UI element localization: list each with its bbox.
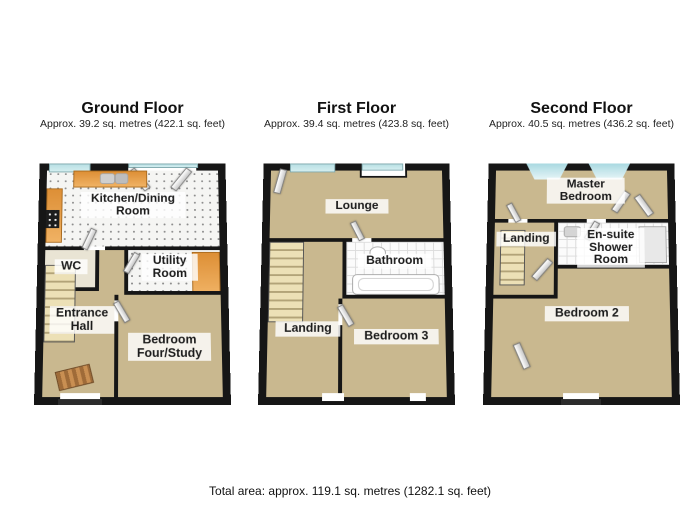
sink-icon xyxy=(100,173,115,184)
ground-floor-panel: Ground Floor Approx. 39.2 sq. metres (42… xyxy=(34,100,231,405)
first-floor-title: First Floor xyxy=(258,100,455,118)
second-floor-area: Approx. 40.5 sq. metres (436.2 sq. feet) xyxy=(483,118,680,131)
second-floor-plan: Master Bedroom Landing En-suite Shower R… xyxy=(483,164,680,405)
front-door-step xyxy=(58,399,102,405)
room-label-lounge: Lounge xyxy=(325,199,388,213)
lounge-window-left xyxy=(290,164,335,173)
room-label-wc: WC xyxy=(54,259,87,273)
ground-floor-interior: Kitchen/Dining Room WC Utility Room Entr… xyxy=(42,171,223,397)
room-label-landing: Landing xyxy=(496,232,556,246)
room-label-bathroom: Bathroom xyxy=(358,254,432,268)
ground-floor-title: Ground Floor xyxy=(34,100,231,118)
room-label-master: Master Bedroom xyxy=(547,178,625,204)
sink-drainer-icon xyxy=(115,173,128,184)
landing-bottom-wall xyxy=(493,295,557,299)
second-floor-interior: Master Bedroom Landing En-suite Shower R… xyxy=(491,171,672,397)
room-label-bed2: Bedroom 2 xyxy=(545,306,629,321)
ground-floor-area: Approx. 39.2 sq. metres (422.1 sq. feet) xyxy=(34,118,231,131)
utility-bottom-wall xyxy=(124,291,220,295)
kitchen-partition-wall xyxy=(45,246,219,250)
bottom-wall-opening-right xyxy=(410,393,426,401)
second-floor-panel: Second Floor Approx. 40.5 sq. metres (43… xyxy=(483,100,680,405)
second-floor-title: Second Floor xyxy=(483,100,680,118)
wc-side-wall xyxy=(95,250,99,287)
room-label-hall: Entrance Hall xyxy=(49,306,114,334)
bathroom-side-wall xyxy=(342,242,346,295)
room-label-utility: Utility Room xyxy=(142,254,198,281)
room-label-ensuite: En-suite Shower Room xyxy=(577,228,645,267)
room-label-kitchen: Kitchen/Dining Room xyxy=(80,192,185,218)
first-floor-plan: Lounge Bathroom Landing Bedroom 3 xyxy=(258,164,455,405)
bathroom-bottom-wall xyxy=(342,295,444,299)
room-label-landing: Landing xyxy=(275,321,340,336)
patio-door-glass xyxy=(128,164,198,168)
total-area-text: Total area: approx. 119.1 sq. metres (12… xyxy=(0,484,700,498)
lounge-window-right xyxy=(362,164,404,171)
bathtub-inner xyxy=(358,278,434,291)
second-floor-door-step xyxy=(561,399,601,405)
room-label-bed3: Bedroom 3 xyxy=(354,329,439,344)
room-label-bed4: Bedroom Four/Study xyxy=(128,333,211,361)
bottom-wall-opening-left xyxy=(322,393,344,401)
first-floor-panel: First Floor Approx. 39.4 sq. metres (423… xyxy=(258,100,455,405)
first-floor-interior: Lounge Bathroom Landing Bedroom 3 xyxy=(266,171,447,397)
staircase xyxy=(268,242,304,322)
ground-floor-plan: Kitchen/Dining Room WC Utility Room Entr… xyxy=(34,164,231,405)
oven-icon xyxy=(46,210,60,228)
first-floor-area: Approx. 39.4 sq. metres (423.8 sq. feet) xyxy=(258,118,455,131)
